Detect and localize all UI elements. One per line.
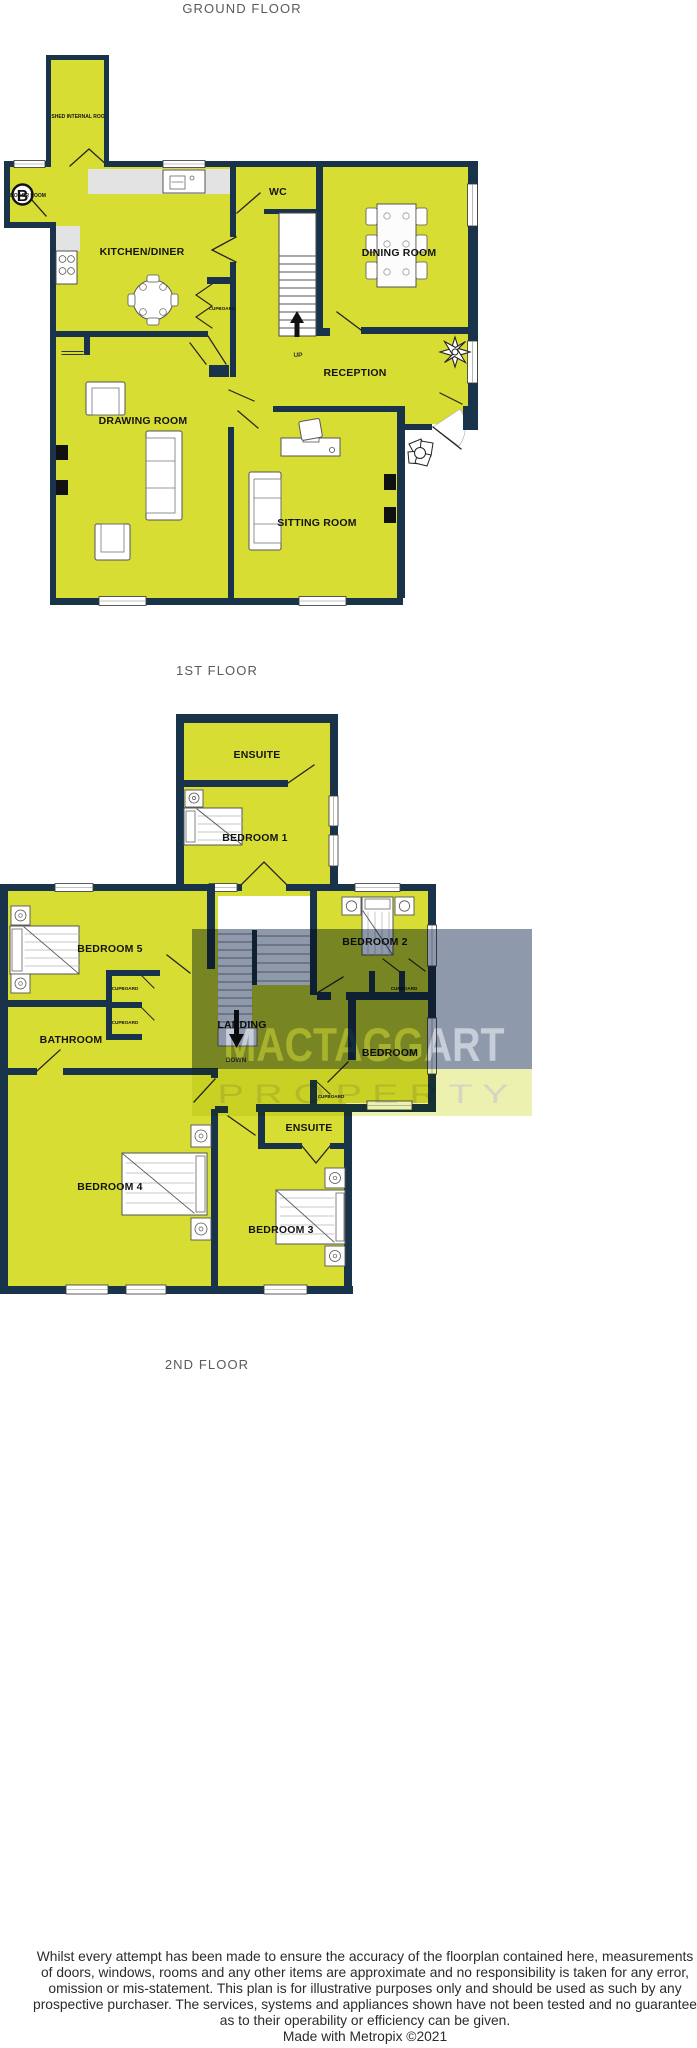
svg-text:P R O P E R T Y: P R O P E R T Y	[218, 1079, 509, 1109]
svg-text:of doors, windows, rooms and a: of doors, windows, rooms and any other i…	[41, 1965, 689, 1980]
svg-text:SHED INTERNAL ROO: SHED INTERNAL ROO	[51, 114, 104, 120]
svg-text:DRAWING ROOM: DRAWING ROOM	[99, 415, 188, 427]
svg-text:ENSUITE: ENSUITE	[286, 1122, 333, 1134]
svg-text:BEDROOM 1: BEDROOM 1	[222, 832, 287, 844]
svg-text:Whilst every attempt has been: Whilst every attempt has been made to en…	[37, 1949, 694, 1964]
svg-text:RECEPTION: RECEPTION	[323, 367, 386, 379]
svg-text:BATHROOM: BATHROOM	[40, 1034, 103, 1046]
svg-text:MACTAGGART: MACTAGGART	[224, 1018, 505, 1071]
svg-text:ENSUITE: ENSUITE	[234, 749, 281, 761]
svg-text:CUPBOARD: CUPBOARD	[112, 986, 139, 991]
svg-text:BEDROOM 5: BEDROOM 5	[77, 943, 142, 955]
svg-text:CUPBOARD: CUPBOARD	[112, 1020, 139, 1025]
svg-text:WC: WC	[269, 186, 287, 198]
svg-text:UP: UP	[293, 352, 303, 359]
svg-text:KITCHEN/DINER: KITCHEN/DINER	[100, 246, 185, 258]
svg-text:BEDROOM 4: BEDROOM 4	[77, 1181, 142, 1193]
svg-text:2ND FLOOR: 2ND FLOOR	[165, 1357, 249, 1372]
svg-text:Made with Metropix ©2021: Made with Metropix ©2021	[283, 2029, 447, 2044]
svg-text:BOILER ROOM: BOILER ROOM	[10, 193, 46, 199]
svg-text:GROUND FLOOR: GROUND FLOOR	[182, 1, 301, 16]
svg-text:CUPBOARD: CUPBOARD	[209, 306, 236, 311]
svg-text:1ST FLOOR: 1ST FLOOR	[176, 663, 258, 678]
svg-text:BEDROOM 3: BEDROOM 3	[248, 1224, 313, 1236]
svg-text:prospective purchaser. The ser: prospective purchaser. The services, sys…	[33, 1997, 697, 2012]
svg-text:omission or mis-statement. Thi: omission or mis-statement. This plan is …	[48, 1981, 681, 1996]
svg-text:DINING ROOM: DINING ROOM	[362, 247, 437, 259]
svg-text:as to their operability or eff: as to their operability or efficiency ca…	[220, 2013, 510, 2028]
svg-text:SITTING ROOM: SITTING ROOM	[277, 517, 356, 529]
